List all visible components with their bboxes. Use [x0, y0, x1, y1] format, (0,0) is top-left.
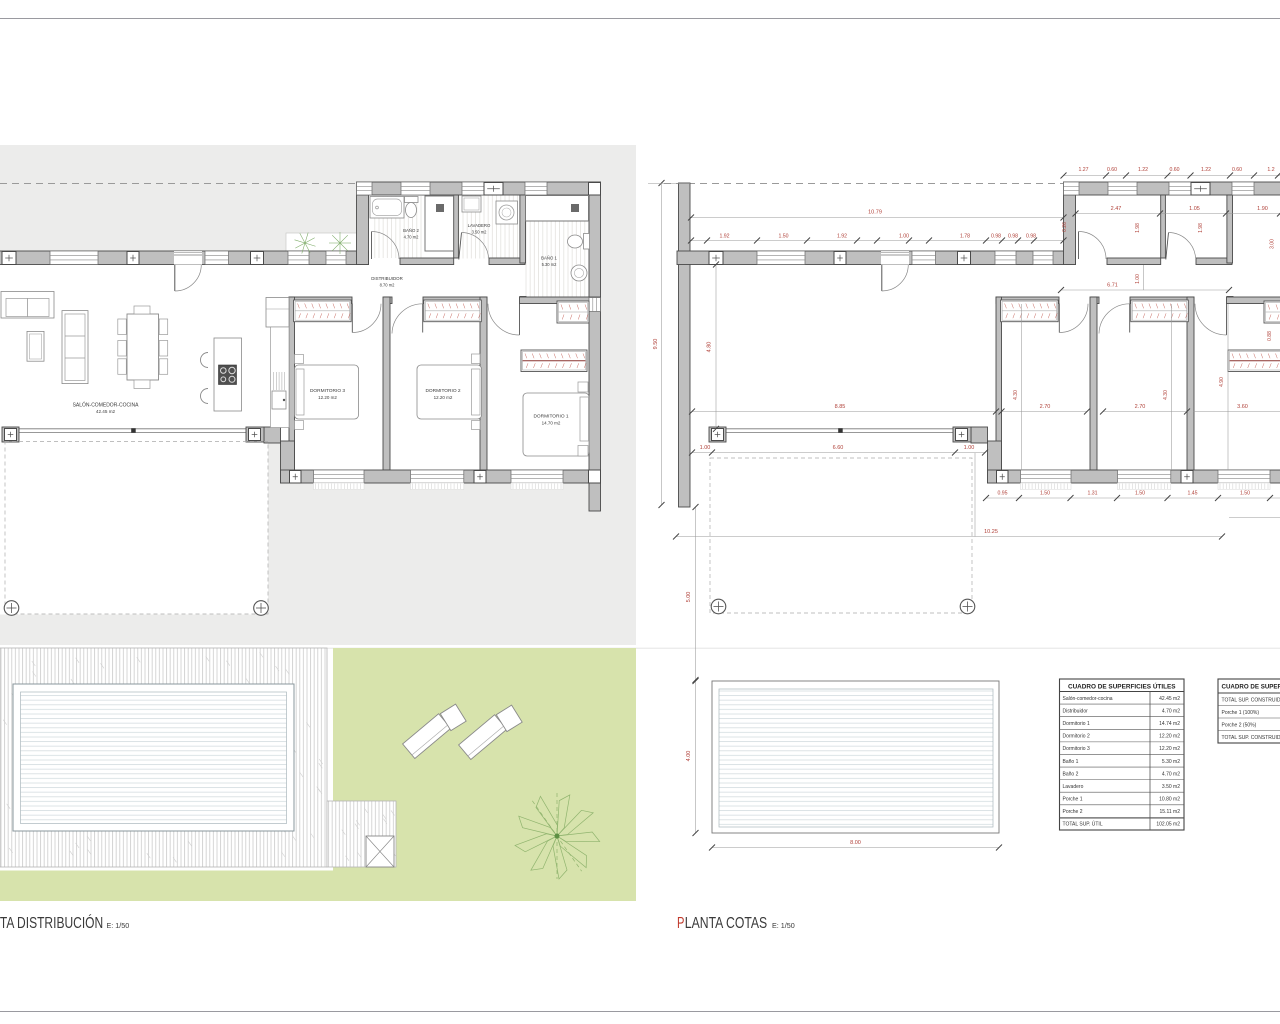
svg-text:Distribuidor: Distribuidor: [1063, 708, 1089, 714]
svg-text:2.70: 2.70: [1040, 404, 1051, 410]
svg-text:9.50: 9.50: [653, 339, 659, 350]
svg-text:5.00: 5.00: [686, 592, 692, 603]
svg-text:4.70 m2: 4.70 m2: [404, 235, 420, 240]
svg-text:Porche 1: Porche 1: [1063, 797, 1083, 803]
svg-text:1.22: 1.22: [1138, 167, 1148, 173]
svg-text:DORMITORIO 2: DORMITORIO 2: [425, 388, 460, 394]
svg-text:1.50: 1.50: [778, 234, 788, 240]
svg-text:Porche 1 (100%): Porche 1 (100%): [1222, 710, 1260, 716]
svg-text:0.60: 0.60: [1169, 167, 1179, 173]
svg-text:2.47: 2.47: [1111, 206, 1122, 212]
svg-text:BAÑO 2: BAÑO 2: [403, 228, 419, 233]
svg-text:0.98: 0.98: [1008, 234, 1018, 240]
svg-text:12.20 m2: 12.20 m2: [1159, 746, 1180, 752]
svg-text:TOTAL SUP. CONSTRUIDA: TOTAL SUP. CONSTRUIDA: [1222, 697, 1280, 703]
svg-text:12.20 m2: 12.20 m2: [1159, 734, 1180, 740]
svg-text:LAVADERO: LAVADERO: [468, 223, 491, 228]
svg-text:12.20 m2: 12.20 m2: [318, 395, 337, 400]
svg-text:1.90: 1.90: [1257, 206, 1268, 212]
svg-text:BAÑO 1: BAÑO 1: [541, 256, 557, 261]
svg-text:6.60: 6.60: [833, 445, 844, 451]
svg-text:0.26: 0.26: [1062, 222, 1068, 232]
svg-text:1.98: 1.98: [1135, 223, 1141, 233]
svg-text:1.00: 1.00: [964, 445, 975, 451]
svg-text:1.27: 1.27: [1078, 167, 1088, 173]
svg-text:DORMITORIO 3: DORMITORIO 3: [310, 388, 345, 394]
svg-text:1.50: 1.50: [1240, 491, 1250, 497]
svg-text:4.80: 4.80: [707, 342, 713, 353]
svg-text:Baño 2: Baño 2: [1063, 771, 1079, 777]
svg-text:3.60: 3.60: [1237, 404, 1248, 410]
svg-text:1.22: 1.22: [1201, 167, 1211, 173]
svg-text:Lavadero: Lavadero: [1063, 784, 1084, 790]
svg-text:15.11 m2: 15.11 m2: [1160, 809, 1181, 815]
svg-text:1.00: 1.00: [1135, 274, 1141, 284]
svg-text:3.50 m2: 3.50 m2: [472, 230, 488, 235]
svg-text:42.45 m2: 42.45 m2: [96, 409, 116, 414]
svg-text:CUADRO DE SUPERFI: CUADRO DE SUPERFI: [1222, 684, 1280, 691]
svg-text:1.31: 1.31: [1087, 491, 1097, 497]
svg-text:DORMITORIO 1: DORMITORIO 1: [533, 414, 568, 420]
svg-text:0.88: 0.88: [1267, 331, 1273, 341]
svg-text:4.30: 4.30: [1163, 390, 1169, 400]
svg-text:TOTAL SUP. CONSTRUIDA: TOTAL SUP. CONSTRUIDA: [1222, 735, 1280, 741]
svg-text:LANTA COTAS: LANTA COTAS: [685, 915, 767, 932]
svg-text:10.25: 10.25: [984, 529, 998, 535]
svg-text:SALÓN-COMEDOR-COCINA: SALÓN-COMEDOR-COCINA: [73, 402, 140, 409]
svg-text:10.80 m2: 10.80 m2: [1159, 797, 1180, 803]
svg-text:0.95: 0.95: [997, 491, 1007, 497]
svg-text:4.70 m2: 4.70 m2: [1162, 771, 1180, 777]
svg-text:102.05 m2: 102.05 m2: [1156, 822, 1180, 828]
svg-text:CUADRO DE SUPERFICIES ÚTILES: CUADRO DE SUPERFICIES ÚTILES: [1068, 682, 1176, 691]
svg-text:10.79: 10.79: [868, 210, 882, 216]
svg-text:Dormitorio 1: Dormitorio 1: [1063, 721, 1090, 727]
svg-text:3.50 m2: 3.50 m2: [1162, 784, 1180, 790]
svg-text:P: P: [677, 915, 684, 932]
svg-text:1.05: 1.05: [1189, 206, 1200, 212]
svg-text:2.70: 2.70: [1135, 404, 1146, 410]
svg-text:1.92: 1.92: [837, 234, 847, 240]
svg-text:1.45: 1.45: [1187, 491, 1197, 497]
svg-text:1.00: 1.00: [700, 445, 711, 451]
svg-text:Salón-comedor-cocina: Salón-comedor-cocina: [1063, 696, 1113, 702]
svg-text:1.92: 1.92: [719, 234, 729, 240]
svg-text:8.85: 8.85: [835, 404, 846, 410]
svg-text:Baño 1: Baño 1: [1063, 759, 1079, 765]
svg-text:1.50: 1.50: [1040, 491, 1050, 497]
svg-text:0.60: 0.60: [1232, 167, 1242, 173]
svg-text:4.30: 4.30: [1013, 390, 1019, 400]
svg-text:14.74 m2: 14.74 m2: [1159, 721, 1180, 727]
svg-text:1.98: 1.98: [1198, 223, 1204, 233]
svg-text:14.70 m2: 14.70 m2: [542, 421, 561, 426]
svg-text:0.98: 0.98: [1026, 234, 1036, 240]
svg-text:Porche 2 (50%): Porche 2 (50%): [1222, 722, 1257, 728]
svg-text:5.30 m2: 5.30 m2: [542, 262, 558, 267]
svg-text:6.71: 6.71: [1107, 283, 1118, 289]
svg-text:E: 1/50: E: 1/50: [772, 921, 795, 930]
svg-text:1.78: 1.78: [960, 234, 970, 240]
svg-text:TOTAL SUP. ÚTIL: TOTAL SUP. ÚTIL: [1063, 821, 1103, 828]
svg-text:42.45 m2: 42.45 m2: [1159, 696, 1180, 702]
svg-text:1.2: 1.2: [1267, 167, 1274, 173]
svg-text:Porche 2: Porche 2: [1063, 809, 1083, 815]
svg-text:4.70 m2: 4.70 m2: [1162, 708, 1180, 714]
svg-text:12.20 m2: 12.20 m2: [434, 395, 453, 400]
svg-text:E: 1/50: E: 1/50: [107, 921, 130, 930]
svg-text:8.00: 8.00: [850, 840, 861, 846]
svg-text:1.00: 1.00: [899, 234, 909, 240]
svg-text:0.98: 0.98: [991, 234, 1001, 240]
svg-text:4.90: 4.90: [1219, 377, 1225, 387]
svg-text:3.00: 3.00: [1270, 239, 1276, 249]
svg-text:DISTRIBUIDOR: DISTRIBUIDOR: [371, 276, 402, 281]
svg-text:5.30 m2: 5.30 m2: [1162, 759, 1180, 765]
svg-text:PLANTA DISTRIBUCIÓN: PLANTA DISTRIBUCIÓN: [0, 915, 103, 932]
svg-text:1.50: 1.50: [1135, 491, 1145, 497]
svg-text:Dormitorio 2: Dormitorio 2: [1063, 734, 1090, 740]
svg-text:Dormitorio 3: Dormitorio 3: [1063, 746, 1090, 752]
svg-text:0.60: 0.60: [1107, 167, 1117, 173]
svg-text:4.00: 4.00: [686, 751, 692, 762]
svg-text:8.70 m2: 8.70 m2: [380, 283, 396, 288]
